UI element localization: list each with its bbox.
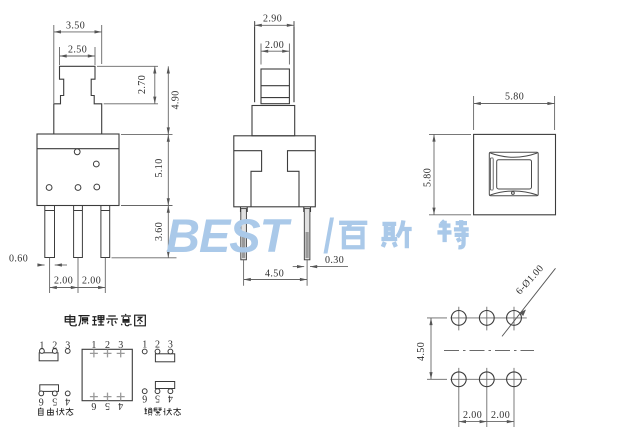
svg-text:4: 4 — [118, 400, 123, 411]
svg-text:2: 2 — [52, 340, 57, 351]
svg-text:6: 6 — [142, 393, 147, 404]
svg-text:4.90: 4.90 — [171, 90, 182, 109]
svg-text:5: 5 — [155, 393, 160, 404]
svg-text:5.10: 5.10 — [154, 158, 165, 177]
svg-text:3: 3 — [168, 340, 173, 351]
svg-text:2.70: 2.70 — [137, 75, 148, 94]
svg-text:5.80: 5.80 — [505, 92, 524, 103]
svg-text:2.50: 2.50 — [68, 45, 87, 56]
svg-text:1: 1 — [91, 340, 96, 351]
svg-text:0.60: 0.60 — [9, 254, 28, 265]
svg-text:BEST: BEST — [166, 209, 293, 262]
svg-text:5: 5 — [105, 400, 110, 411]
svg-text:5: 5 — [52, 396, 57, 407]
svg-text:0.30: 0.30 — [325, 255, 344, 266]
svg-text:1: 1 — [142, 340, 147, 351]
svg-text:4: 4 — [168, 393, 173, 404]
svg-text:2.00: 2.00 — [491, 410, 510, 421]
svg-text:4: 4 — [65, 396, 70, 407]
svg-text:6-Ø1.00: 6-Ø1.00 — [514, 263, 546, 297]
svg-text:2.90: 2.90 — [263, 14, 282, 25]
svg-text:6: 6 — [91, 400, 96, 411]
svg-text:6: 6 — [39, 396, 44, 407]
svg-text:3: 3 — [118, 340, 123, 351]
svg-text:1: 1 — [39, 340, 44, 351]
svg-text:2.00: 2.00 — [54, 276, 73, 287]
svg-text:2: 2 — [155, 340, 160, 351]
svg-text:2.00: 2.00 — [463, 410, 482, 421]
svg-text:2: 2 — [105, 340, 110, 351]
svg-text:4.50: 4.50 — [416, 342, 427, 361]
svg-text:4.50: 4.50 — [265, 269, 284, 280]
svg-text:2.00: 2.00 — [82, 276, 101, 287]
svg-text:3: 3 — [65, 340, 70, 351]
svg-text:2.00: 2.00 — [265, 40, 284, 51]
svg-text:3.50: 3.50 — [66, 21, 85, 32]
svg-text:5.80: 5.80 — [423, 168, 434, 187]
svg-text:3.60: 3.60 — [154, 222, 165, 241]
